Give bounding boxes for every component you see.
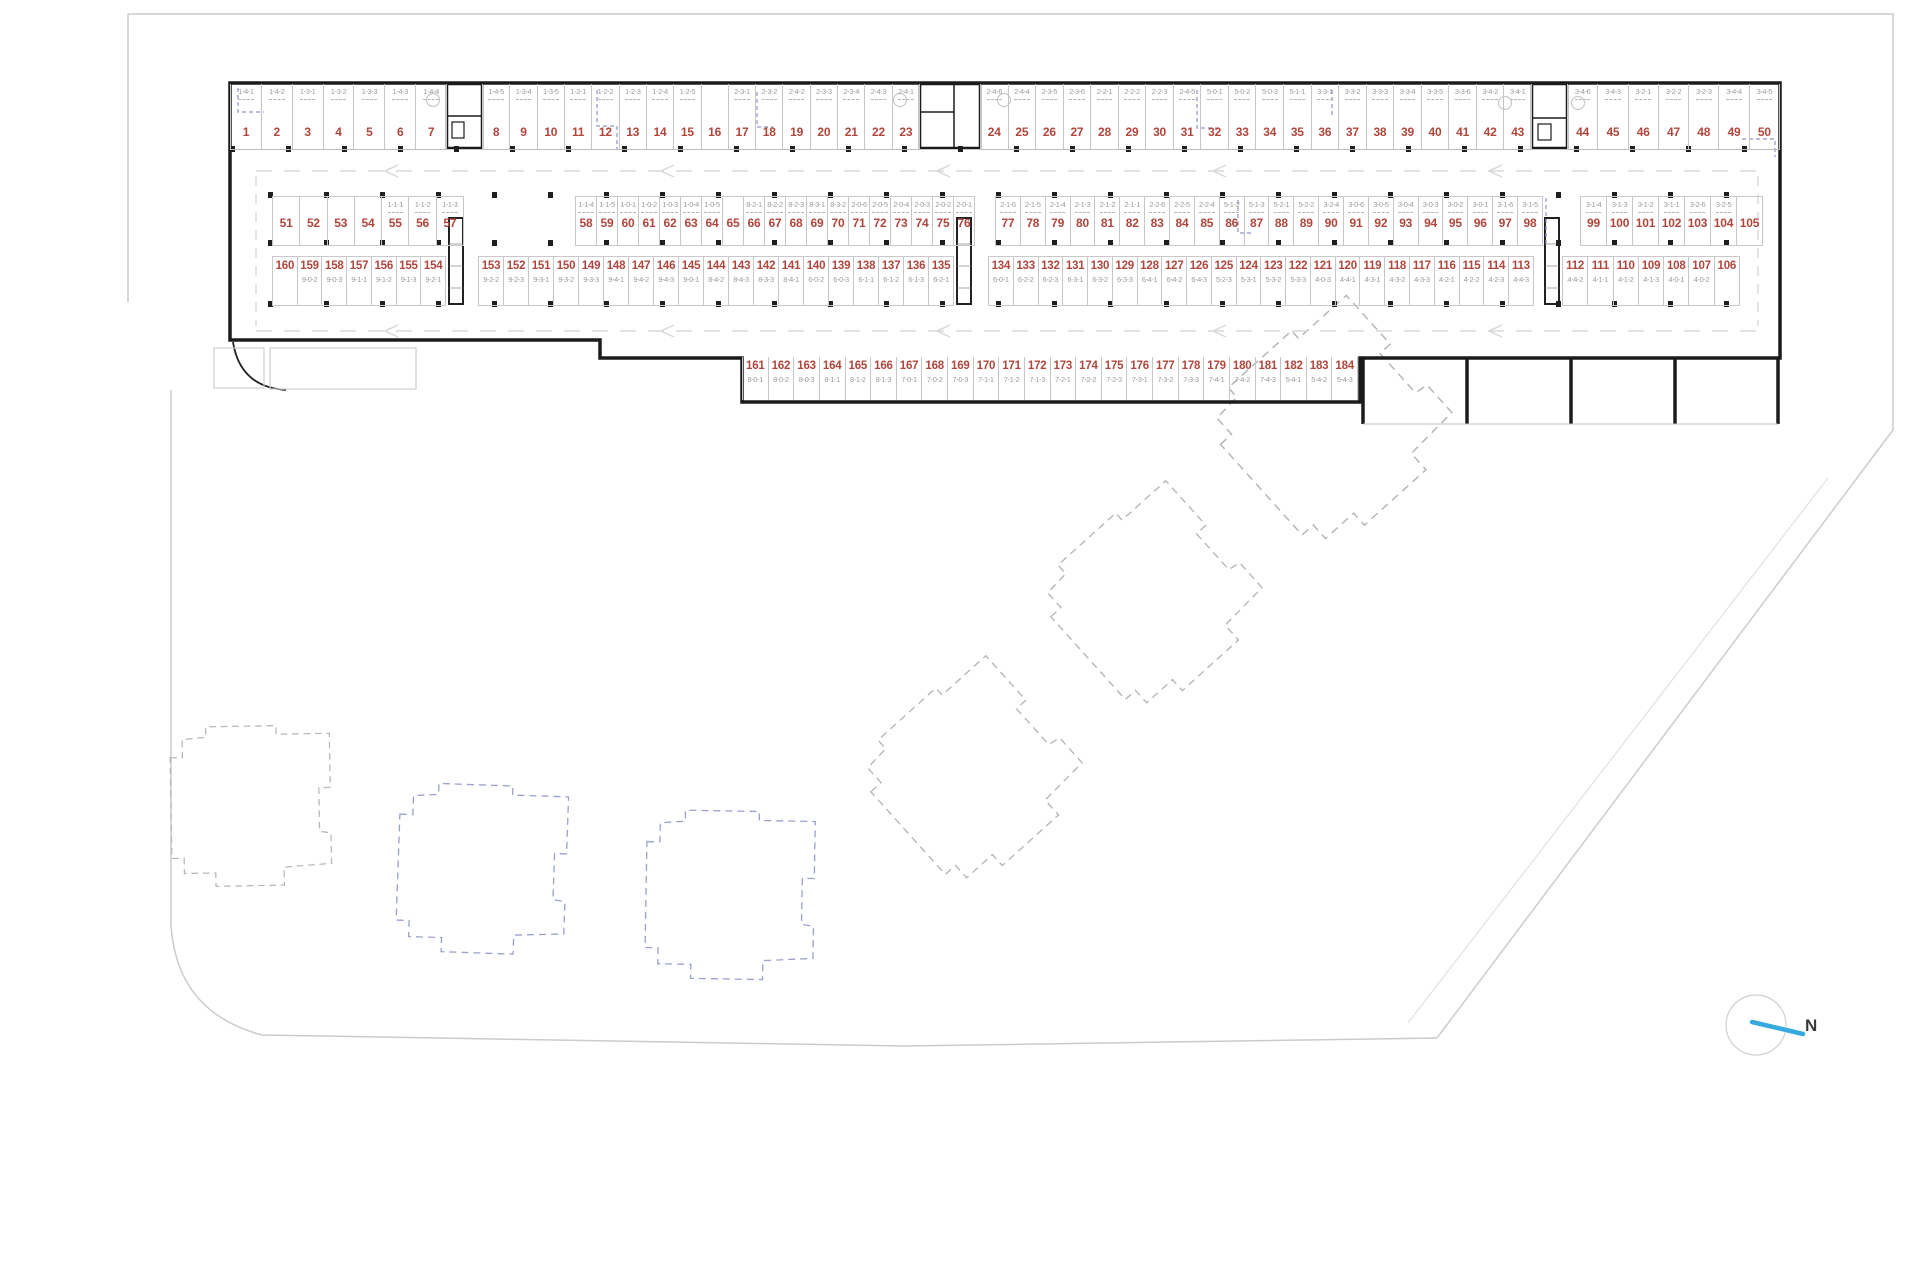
stall-code: 2-2-4 (1199, 200, 1215, 213)
parking-stall: 1418-4-1 (779, 257, 804, 305)
stall-number: 7 (428, 126, 434, 138)
stall-number: 36 (1318, 126, 1331, 138)
stall-code: 9-4-2 (633, 275, 649, 286)
stall-code: 5-1-3 (1249, 200, 1265, 213)
stall-code: 2-4-6 (987, 87, 1003, 100)
parking-stall: 1276-4-2 (1162, 257, 1187, 305)
parking-stall: 1266-4-3 (1187, 257, 1212, 305)
stall-code: 2-0-3 (914, 200, 930, 213)
parking-stall: 1-1-559 (597, 197, 618, 245)
stall-number: 39 (1401, 126, 1414, 138)
stall-number: 137 (882, 261, 901, 273)
stall-number: 115 (1462, 261, 1480, 273)
parking-stall: 1687-0-2 (922, 357, 948, 400)
parking-stall: 1286-4-1 (1138, 257, 1163, 305)
stall-number: 114 (1487, 261, 1505, 273)
stall-number: 135 (932, 261, 951, 273)
parking-stall: 1094-1-3 (1639, 257, 1664, 305)
north-arrow-icon (1726, 995, 1803, 1055)
stall-number: 139 (832, 261, 851, 273)
stall-number: 138 (857, 261, 876, 273)
stall-code: 3-1-3 (1612, 200, 1628, 213)
parking-stall: 1668-1-3 (871, 357, 897, 400)
stall-number: 141 (782, 261, 801, 273)
parking-stall: 1697-0-3 (948, 357, 974, 400)
stall-number: 84 (1175, 217, 1188, 229)
stall-number: 80 (1076, 217, 1089, 229)
stall-code: 3-4-2 (1482, 87, 1498, 100)
north-label: N (1805, 1016, 1817, 1036)
parking-stall: 1-0-463 (681, 197, 702, 245)
parking-stall: 2-3-627 (1064, 84, 1092, 149)
stall-code: 7-2-1 (1055, 375, 1071, 386)
stall-number: 112 (1566, 261, 1584, 273)
stall-number: 180 (1233, 361, 1252, 373)
stall-code: 3-2-2 (1666, 87, 1682, 100)
stall-code: 2-0-5 (872, 200, 888, 213)
stall-code: 4-1-3 (1643, 275, 1659, 286)
parking-stall: 3-0-592 (1369, 197, 1394, 245)
parking-stall: 1366-1-3 (904, 257, 929, 305)
stall-number: 77 (1001, 217, 1014, 229)
stall-number: 60 (622, 217, 635, 229)
parking-stall: 1707-1-1 (974, 357, 1000, 400)
parking-stall: 3-0-493 (1394, 197, 1419, 245)
parking-stall: 1-2-414 (647, 84, 674, 149)
parking-stall: 5-1-135 (1284, 84, 1312, 149)
parking-stall: 1214-0-3 (1311, 257, 1336, 305)
stall-number: 158 (325, 261, 344, 273)
stall-number: 128 (1140, 261, 1159, 273)
stall-number: 125 (1214, 261, 1233, 273)
parking-row-group: 1-4-111-4-221-3-131-3-241-3-351-4-361-4-… (230, 84, 447, 150)
parking-stall: 2-1-281 (1095, 197, 1120, 245)
stall-number: 33 (1236, 126, 1249, 138)
parking-stall: 1376-1-2 (879, 257, 904, 305)
stall-number: 1 (243, 126, 249, 138)
parking-stall: 1727-1-3 (1025, 357, 1051, 400)
stall-code: 2-4-1 (898, 87, 914, 100)
stall-code: 5-4-3 (1337, 375, 1353, 386)
stall-code: 4-3-3 (1414, 275, 1430, 286)
parking-stall: 2-0-473 (891, 197, 912, 245)
stall-code: 3-1-4 (1586, 200, 1602, 213)
stall-number: 105 (1740, 217, 1759, 229)
stall-code: 9-1-3 (401, 275, 417, 286)
stall-number: 110 (1617, 261, 1635, 273)
stall-number: 34 (1263, 126, 1276, 138)
parking-stall: 1-2-111 (565, 84, 592, 149)
stall-number: 61 (643, 217, 656, 229)
stall-number: 170 (977, 361, 996, 373)
stall-number: 83 (1151, 217, 1164, 229)
stall-code: 3-0-5 (1373, 200, 1389, 213)
parking-stall: 0-0-052 (300, 197, 327, 245)
drive-aisle-markings (256, 165, 1758, 337)
parking-stall: 1164-2-1 (1435, 257, 1460, 305)
parking-stall: 1677-0-1 (897, 357, 923, 400)
parking-stall: 3-2-247 (1659, 84, 1689, 149)
stall-number: 90 (1325, 217, 1338, 229)
stall-number: 99 (1587, 217, 1600, 229)
stall-number: 63 (685, 217, 698, 229)
parking-stall: 1144-2-3 (1484, 257, 1509, 305)
stall-code: 3-0-6 (1348, 200, 1364, 213)
stall-code: 2-2-3 (1152, 87, 1168, 100)
stall-code: 1-3-2 (331, 87, 347, 100)
parking-stall: 1356-2-1 (929, 257, 954, 305)
stall-number: 168 (925, 361, 944, 373)
parking-stall: 2-1-578 (1021, 197, 1046, 245)
stall-code: 2-1-2 (1100, 200, 1116, 213)
stall-number: 38 (1373, 126, 1386, 138)
stall-number: 93 (1399, 217, 1412, 229)
stall-number: 74 (916, 217, 929, 229)
stall-code: 3-4-6 (1575, 87, 1591, 100)
stall-number: 57 (443, 217, 456, 229)
stall-number: 166 (874, 361, 893, 373)
stall-number: 120 (1338, 261, 1357, 273)
stall-code: 5-0-2 (1234, 87, 1250, 100)
parking-stall: 3-1-598 (1518, 197, 1543, 245)
stall-number: 177 (1156, 361, 1175, 373)
stall-code: 2-1-5 (1025, 200, 1041, 213)
stall-number: 79 (1051, 217, 1064, 229)
stall-number: 6 (397, 126, 403, 138)
parking-stall: 2-0-275 (933, 197, 954, 245)
stall-code: 4-1-2 (1618, 275, 1634, 286)
stall-code: 9-2-2 (483, 275, 499, 286)
parking-stall: 0-0-053 (328, 197, 355, 245)
stall-code: 8-2-3 (788, 200, 804, 213)
parking-stall: 0-0-054 (355, 197, 382, 245)
stall-number: 22 (872, 126, 885, 138)
stall-number: 95 (1449, 217, 1462, 229)
parking-stall: 1459-0-1 (679, 257, 704, 305)
parking-stall: 1638-0-3 (794, 357, 820, 400)
parking-stall: 1-3-35 (354, 84, 385, 149)
stall-code: 7-0-2 (927, 375, 943, 386)
stall-number: 164 (823, 361, 842, 373)
stall-code: 5-2-2 (1298, 200, 1314, 213)
parking-stall: 1448-4-2 (704, 257, 729, 305)
parking-stall: 1499-3-3 (579, 257, 604, 305)
stall-code: 6-0-3 (833, 275, 849, 286)
stall-number: 28 (1098, 126, 1111, 138)
parking-stall: 5-1-387 (1245, 197, 1270, 245)
stall-code: 1-0-4 (683, 200, 699, 213)
stall-number: 49 (1728, 126, 1741, 138)
parking-stall: 0-0-0105 (1737, 197, 1763, 245)
stall-number: 14 (654, 126, 667, 138)
parking-stall: 1204-4-1 (1336, 257, 1361, 305)
stall-number: 153 (482, 261, 501, 273)
parking-stall: 0-0-051 (273, 197, 300, 245)
parking-stall: 2-1-380 (1071, 197, 1096, 245)
parking-stall: 1559-1-3 (397, 257, 422, 305)
parking-stall: 1-3-13 (293, 84, 324, 149)
stall-code: 9-4-1 (608, 275, 624, 286)
parking-stall: 1134-4-3 (1509, 257, 1534, 305)
stall-number: 46 (1637, 126, 1650, 138)
stall-number: 106 (1718, 261, 1737, 273)
stall-number: 70 (832, 217, 845, 229)
stall-number: 67 (769, 217, 782, 229)
stall-number: 98 (1524, 217, 1537, 229)
stall-number: 126 (1190, 261, 1209, 273)
stall-number: 59 (601, 217, 614, 229)
stall-code: 2-2-6 (1149, 200, 1165, 213)
parking-stall: 3-3-641 (1449, 84, 1477, 149)
stall-code: 2-0-4 (893, 200, 909, 213)
stall-code: 1-0-1 (620, 200, 636, 213)
parking-stall: 5-2-188 (1269, 197, 1294, 245)
stall-number: 148 (607, 261, 626, 273)
stall-number: 159 (300, 261, 319, 273)
stall-number: 163 (797, 361, 816, 373)
parking-stall: 5-0-334 (1256, 84, 1284, 149)
parking-stall: 1438-4-3 (729, 257, 754, 305)
parking-stall: 1084-0-1 (1664, 257, 1689, 305)
parking-stall: 1114-1-1 (1588, 257, 1613, 305)
stall-number: 18 (763, 126, 776, 138)
stall-number: 62 (664, 217, 677, 229)
stall-code: 1-2-1 (570, 87, 586, 100)
parking-stall: 1406-0-2 (804, 257, 829, 305)
stall-code: 6-4-1 (1142, 275, 1158, 286)
stall-code: 9-3-1 (533, 275, 549, 286)
parking-stall: 1817-4-3 (1256, 357, 1282, 400)
parking-stall: 1184-3-2 (1385, 257, 1410, 305)
parking-stall: 1-3-49 (510, 84, 537, 149)
parking-stall: 2-4-624 (981, 84, 1009, 149)
stall-number: 45 (1606, 126, 1619, 138)
parking-stall: 3-3-237 (1339, 84, 1367, 149)
parking-stall: 1717-1-2 (999, 357, 1025, 400)
stall-number: 53 (334, 217, 347, 229)
stall-code: 2-1-3 (1075, 200, 1091, 213)
parking-stall: 3-2-6103 (1685, 197, 1711, 245)
stall-code: 3-0-4 (1398, 200, 1414, 213)
stall-code: 2-1-1 (1124, 200, 1140, 213)
stall-code: 4-0-3 (1315, 275, 1331, 286)
parking-stall: 3-2-348 (1689, 84, 1719, 149)
stall-number: 82 (1126, 217, 1139, 229)
parking-stall: 1194-3-1 (1360, 257, 1385, 305)
stall-number: 40 (1429, 126, 1442, 138)
parking-stall: 2-1-182 (1120, 197, 1145, 245)
parking-stall: 1509-3-2 (554, 257, 579, 305)
stall-code: 9-3-2 (558, 275, 574, 286)
parking-stall: 0-0-016 (702, 84, 729, 149)
stall-number: 30 (1153, 126, 1166, 138)
parking-row-group: 1-4-581-3-491-3-5101-2-1111-2-2121-2-313… (482, 84, 920, 150)
parking-stall: 2-1-479 (1046, 197, 1071, 245)
stall-number: 86 (1225, 217, 1238, 229)
parking-stall: 2-2-584 (1170, 197, 1195, 245)
stall-number: 100 (1610, 217, 1629, 229)
stall-code: 2-2-1 (1097, 87, 1113, 100)
stall-number: 123 (1264, 261, 1283, 273)
stall-number: 172 (1028, 361, 1047, 373)
parking-stall: 2-3-320 (811, 84, 838, 149)
stall-code: 6-2-1 (933, 275, 949, 286)
stall-code: 5-4-1 (1286, 375, 1302, 386)
stall-code: 1-4-5 (488, 87, 504, 100)
stall-code: 8-0-3 (799, 375, 815, 386)
stall-code: 5-3-3 (1290, 275, 1306, 286)
parking-stall: 3-4-242 (1477, 84, 1505, 149)
stall-code: 8-2-1 (746, 200, 762, 213)
parking-stall: 1336-2-2 (1014, 257, 1039, 305)
stall-code: 4-2-3 (1488, 275, 1504, 286)
stall-number: 160 (276, 261, 295, 273)
parking-stall: 1-0-362 (660, 197, 681, 245)
stall-number: 176 (1130, 361, 1149, 373)
parking-stall: 1-4-47 (416, 84, 447, 149)
parking-stall: 1-1-357 (437, 197, 464, 245)
stall-code: 3-3-3 (1372, 87, 1388, 100)
stall-number: 68 (790, 217, 803, 229)
stall-code: 1-3-3 (362, 87, 378, 100)
parking-stall: 8-2-368 (786, 197, 807, 245)
stall-number: 4 (335, 126, 341, 138)
stall-code: 8-1-1 (824, 375, 840, 386)
parking-stall: 8-3-270 (828, 197, 849, 245)
stall-number: 5 (366, 126, 372, 138)
stall-number: 140 (807, 261, 826, 273)
stall-code: 7-4-2 (1234, 375, 1250, 386)
stall-code: 3-3-5 (1427, 87, 1443, 100)
parking-stall: 1628-0-2 (769, 357, 795, 400)
stall-number: 184 (1335, 361, 1354, 373)
stall-number: 133 (1016, 261, 1035, 273)
stall-code: 2-4-4 (1014, 87, 1030, 100)
stall-code: 2-4-3 (871, 87, 887, 100)
stall-code: 7-2-3 (1106, 375, 1122, 386)
parking-stall: 3-1-3100 (1607, 197, 1633, 245)
stall-number: 37 (1346, 126, 1359, 138)
stall-number: 91 (1349, 217, 1362, 229)
parking-stall: 1235-3-2 (1261, 257, 1286, 305)
stall-number: 2 (274, 126, 280, 138)
stall-code: 6-4-2 (1166, 275, 1182, 286)
parking-stall: 1469-4-3 (654, 257, 679, 305)
stall-number: 109 (1642, 261, 1661, 273)
stall-number: 47 (1667, 126, 1680, 138)
parking-stall: 3-2-146 (1629, 84, 1659, 149)
parking-stall: 1255-2-3 (1212, 257, 1237, 305)
parking-stall: 3-0-196 (1468, 197, 1493, 245)
parking-stall: 1326-2-3 (1039, 257, 1064, 305)
parking-row-group: 1346-0-11336-2-21326-2-31316-3-11306-3-2… (988, 256, 1534, 306)
stall-number: 157 (350, 261, 369, 273)
stall-code: 2-0-1 (956, 200, 972, 213)
parking-stall: 3-2-5104 (1711, 197, 1737, 245)
stall-number: 19 (790, 126, 803, 138)
access-road-line (1408, 478, 1828, 1023)
parking-stall: 1060-0-0 (1715, 257, 1740, 305)
stall-number: 101 (1636, 217, 1655, 229)
parking-stall: 3-4-644 (1568, 84, 1598, 149)
stall-code: 4-3-1 (1365, 275, 1381, 286)
stall-code: 3-3-1 (1317, 87, 1333, 100)
parking-stall: 1737-2-1 (1051, 357, 1077, 400)
parking-stall: 2-3-218 (756, 84, 783, 149)
stall-code: 2-3-1 (734, 87, 750, 100)
stall-code: 1-3-4 (516, 87, 532, 100)
parking-row-group: 1600-0-01599-0-21589-0-31579-1-11569-1-2… (272, 256, 446, 306)
stall-number: 76 (958, 217, 971, 229)
stall-code: 1-2-2 (598, 87, 614, 100)
parking-stall: 3-1-697 (1493, 197, 1518, 245)
parking-stall: 1648-1-1 (820, 357, 846, 400)
stall-code: 7-1-3 (1029, 375, 1045, 386)
stall-number: 149 (582, 261, 601, 273)
stall-code: 3-2-4 (1323, 200, 1339, 213)
stall-code: 6-3-3 (1117, 275, 1133, 286)
parking-stall: 2-2-683 (1145, 197, 1170, 245)
stall-code: 9-0-3 (327, 275, 343, 286)
parking-stall: 0-0-065 (723, 197, 744, 245)
parking-stall: 3-2-490 (1319, 197, 1344, 245)
stall-number: 144 (707, 261, 726, 273)
stall-code: 4-4-3 (1513, 275, 1529, 286)
stall-number: 182 (1284, 361, 1303, 373)
parking-stall: 1-0-160 (618, 197, 639, 245)
stall-code: 7-0-3 (953, 375, 969, 386)
stall-number: 134 (992, 261, 1011, 273)
stall-code: 1-4-1 (238, 87, 254, 100)
stall-number: 104 (1714, 217, 1733, 229)
parking-stall: 1-4-22 (262, 84, 293, 149)
stall-number: 151 (532, 261, 551, 273)
stall-code: 1-0-5 (704, 200, 720, 213)
parking-stall: 2-2-330 (1146, 84, 1174, 149)
stall-number: 119 (1363, 261, 1381, 273)
stall-code: 2-4-2 (789, 87, 805, 100)
stall-code: 6-4-3 (1191, 275, 1207, 286)
stall-code: 9-2-1 (425, 275, 441, 286)
stall-number: 130 (1091, 261, 1110, 273)
parking-stall: 2-1-677 (996, 197, 1021, 245)
stall-code: 3-1-6 (1497, 200, 1513, 213)
stall-number: 142 (757, 261, 776, 273)
parking-row-group: 1618-0-11628-0-21638-0-31648-1-11658-1-2… (742, 357, 1358, 400)
stall-number: 147 (632, 261, 651, 273)
stall-code: 3-4-5 (1757, 87, 1773, 100)
stall-code: 2-1-4 (1050, 200, 1066, 213)
stall-code: 7-1-1 (978, 375, 994, 386)
stall-code: 3-1-2 (1638, 200, 1654, 213)
parking-stall: 1-2-313 (620, 84, 647, 149)
stall-code: 6-0-1 (993, 275, 1009, 286)
parking-stall: 1316-3-1 (1063, 257, 1088, 305)
stall-code: 4-4-1 (1340, 275, 1356, 286)
stall-code: 1-1-5 (599, 200, 615, 213)
stall-number: 9 (520, 126, 526, 138)
stall-number: 56 (416, 217, 429, 229)
stall-code: 8-0-1 (748, 375, 764, 386)
stall-number: 65 (727, 217, 740, 229)
stall-number: 165 (849, 361, 868, 373)
stall-number: 21 (845, 126, 858, 138)
stall-number: 87 (1250, 217, 1263, 229)
stall-code: 7-3-1 (1132, 375, 1148, 386)
parking-stall: 2-3-117 (729, 84, 756, 149)
stall-number: 31 (1181, 126, 1194, 138)
stall-code: 1-2-3 (625, 87, 641, 100)
